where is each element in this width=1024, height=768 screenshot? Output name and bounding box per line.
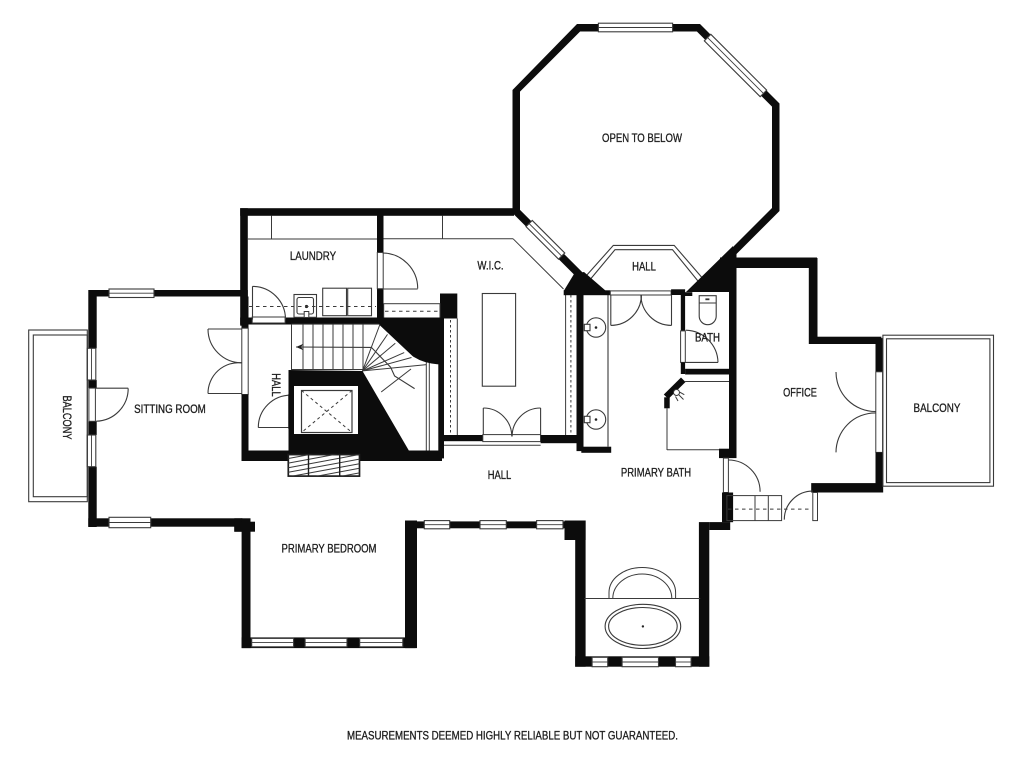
- svg-text:PRIMARY BEDROOM: PRIMARY BEDROOM: [282, 543, 377, 555]
- svg-text:HALL: HALL: [488, 470, 512, 482]
- svg-text:PRIMARY BATH: PRIMARY BATH: [621, 467, 691, 479]
- svg-text:MEASUREMENTS DEEMED HIGHLY REL: MEASUREMENTS DEEMED HIGHLY RELIABLE BUT …: [347, 730, 678, 742]
- svg-text:SITTING ROOM: SITTING ROOM: [134, 404, 206, 416]
- svg-text:LAUNDRY: LAUNDRY: [290, 251, 337, 263]
- svg-text:HALL: HALL: [632, 261, 656, 273]
- svg-text:BATH: BATH: [695, 333, 720, 345]
- svg-text:W.I.C.: W.I.C.: [477, 261, 503, 273]
- svg-text:BALCONY: BALCONY: [914, 403, 961, 415]
- svg-text:OPEN TO BELOW: OPEN TO BELOW: [602, 133, 682, 145]
- svg-text:BALCONY: BALCONY: [60, 396, 72, 440]
- svg-text:OFFICE: OFFICE: [783, 387, 817, 399]
- svg-text:HALL: HALL: [269, 373, 281, 397]
